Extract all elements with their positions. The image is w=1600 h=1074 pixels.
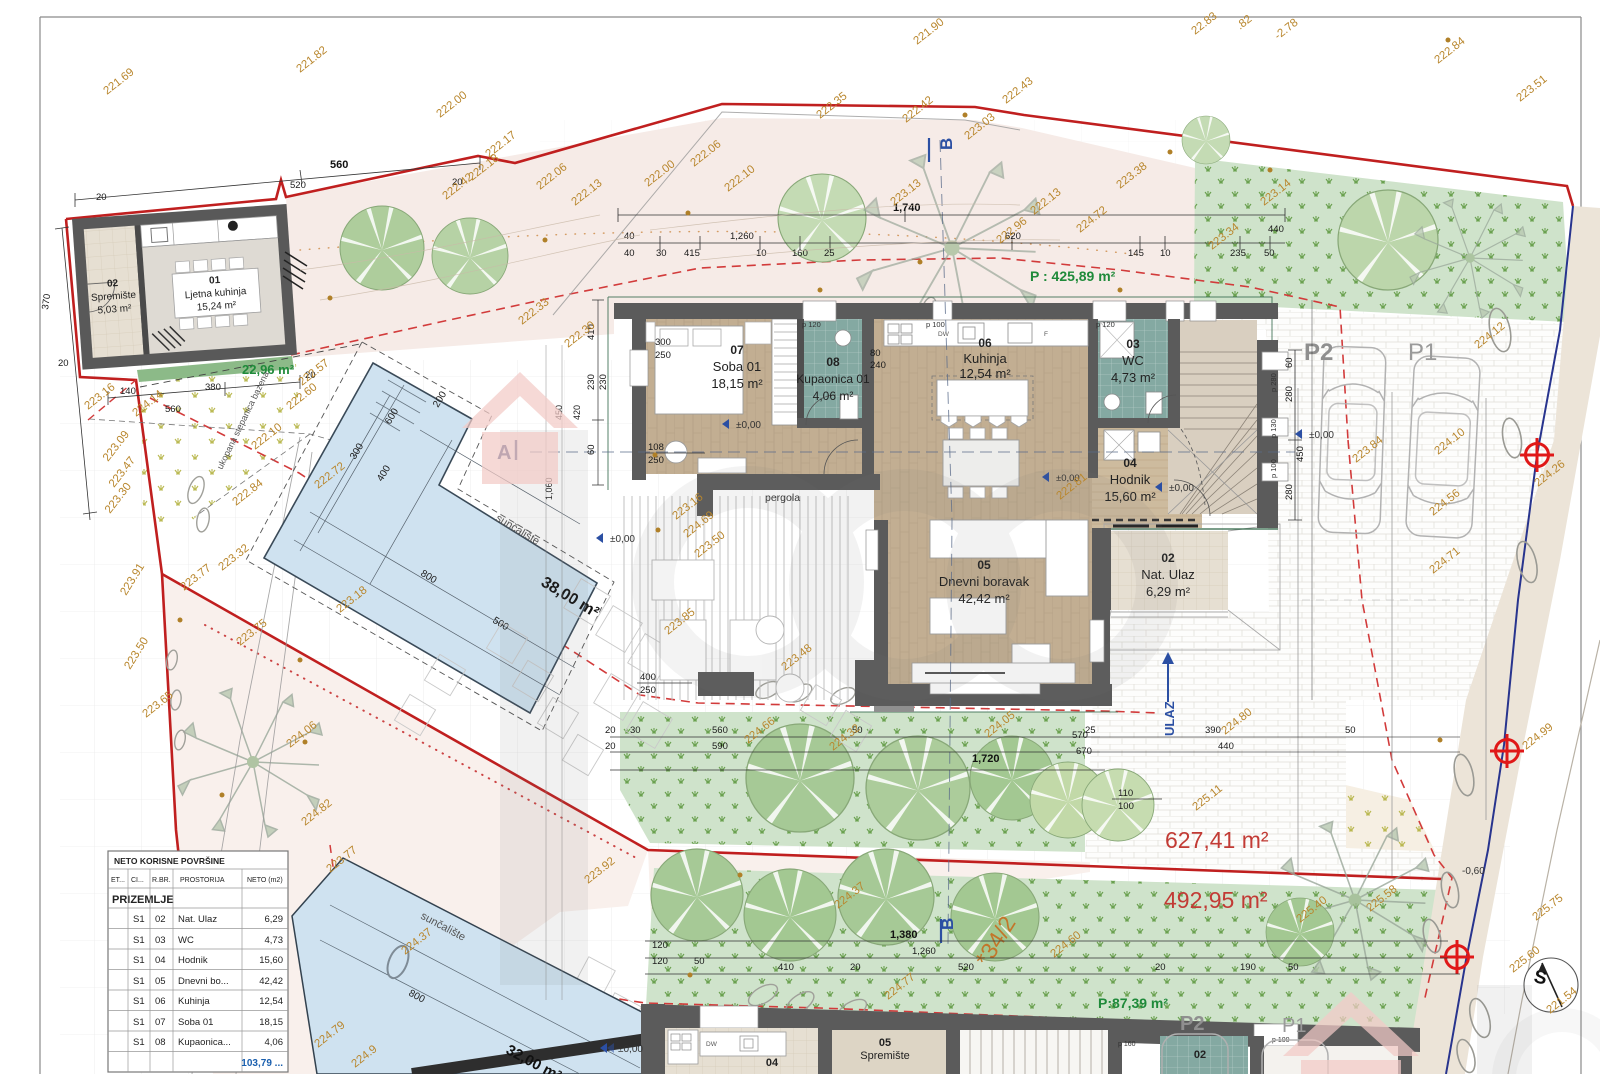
svg-text:20: 20 (605, 741, 616, 752)
svg-text:80: 80 (870, 348, 881, 359)
svg-text:20: 20 (605, 725, 616, 736)
svg-text:12,54 m²: 12,54 m² (959, 366, 1011, 381)
svg-text:30: 30 (656, 248, 667, 259)
svg-text:10: 10 (756, 248, 767, 259)
svg-text:280: 280 (1284, 386, 1295, 402)
svg-text:WC: WC (1122, 353, 1144, 368)
svg-text:42,42: 42,42 (259, 976, 283, 987)
svg-text:50: 50 (1264, 248, 1275, 259)
svg-text:50: 50 (694, 956, 705, 967)
svg-text:Spremište: Spremište (860, 1050, 910, 1062)
svg-text:06: 06 (155, 996, 166, 1007)
svg-text:04: 04 (155, 955, 166, 966)
svg-text:03: 03 (1126, 337, 1140, 351)
svg-text:P:87,39 m²: P:87,39 m² (1098, 995, 1168, 1011)
svg-text:±0,00: ±0,00 (1309, 430, 1334, 441)
svg-text:Soba 01: Soba 01 (713, 359, 761, 374)
svg-text:CI...: CI... (131, 877, 144, 884)
svg-text:S1: S1 (133, 1037, 145, 1048)
svg-text:15,60: 15,60 (259, 955, 283, 966)
svg-text:DW: DW (938, 331, 950, 338)
svg-text:280: 280 (1284, 484, 1295, 500)
svg-text:WC: WC (178, 935, 194, 946)
svg-text:420: 420 (572, 405, 582, 420)
svg-text:NETO (m2): NETO (m2) (247, 877, 283, 884)
svg-text:190: 190 (1240, 962, 1256, 973)
svg-text:p 280: p 280 (1269, 373, 1278, 392)
svg-text:50: 50 (1288, 962, 1299, 973)
svg-text:07: 07 (730, 343, 744, 357)
svg-text:±0,00: ±0,00 (618, 1044, 643, 1055)
svg-text:PRIZEMLJE: PRIZEMLJE (112, 894, 174, 906)
svg-text:S1: S1 (133, 1017, 145, 1028)
svg-text:P2: P2 (1180, 1013, 1204, 1035)
svg-text:415: 415 (684, 248, 700, 259)
svg-text:4,73: 4,73 (265, 935, 284, 946)
svg-text:25: 25 (824, 248, 835, 259)
svg-text:4,73 m²: 4,73 m² (1111, 370, 1156, 385)
svg-text:02: 02 (107, 278, 119, 290)
svg-text:04: 04 (1123, 456, 1137, 470)
svg-text:120: 120 (652, 940, 668, 951)
svg-text:1,380: 1,380 (890, 929, 918, 941)
svg-text:108: 108 (648, 442, 664, 453)
svg-text:230: 230 (598, 374, 609, 390)
svg-text:440: 440 (1268, 224, 1284, 235)
svg-text:Kupaonica...: Kupaonica... (178, 1037, 231, 1048)
svg-text:ET...: ET... (111, 877, 125, 884)
svg-text:1,720: 1,720 (972, 753, 1000, 765)
svg-text:05: 05 (155, 976, 166, 987)
svg-text:NETO KORISNE POVRŠINE: NETO KORISNE POVRŠINE (114, 855, 225, 866)
svg-text:Dnevni bo...: Dnevni bo... (178, 976, 229, 987)
svg-text:08: 08 (155, 1037, 166, 1048)
svg-text:p 100: p 100 (1269, 459, 1278, 478)
svg-text:560: 560 (712, 725, 728, 736)
svg-text:440: 440 (1218, 741, 1234, 752)
svg-text:20: 20 (1155, 962, 1166, 973)
svg-text:6,29: 6,29 (265, 914, 284, 925)
svg-text:B: B (937, 138, 956, 150)
svg-text:160: 160 (792, 248, 808, 259)
svg-text:P1: P1 (1282, 1015, 1306, 1037)
svg-text:06: 06 (978, 336, 992, 350)
svg-text:250: 250 (640, 685, 656, 696)
svg-text:110: 110 (1118, 788, 1133, 799)
svg-text:S1: S1 (133, 996, 145, 1007)
svg-text:P2: P2 (1304, 339, 1333, 366)
svg-text:Kuhinja: Kuhinja (963, 351, 1007, 366)
svg-text:Kupaonica 01: Kupaonica 01 (796, 372, 870, 386)
svg-text:07: 07 (155, 1017, 166, 1028)
svg-text:20: 20 (58, 358, 69, 369)
svg-text:60: 60 (1284, 357, 1295, 368)
svg-text:250: 250 (655, 350, 671, 361)
svg-text:04: 04 (766, 1057, 779, 1069)
svg-text:P1: P1 (1408, 339, 1437, 366)
svg-text:10: 10 (1160, 248, 1171, 259)
svg-text:PROSTORIJA: PROSTORIJA (180, 877, 225, 884)
svg-text:670: 670 (1076, 746, 1092, 757)
svg-text:Soba 01: Soba 01 (178, 1017, 213, 1028)
svg-text:520: 520 (958, 962, 974, 973)
svg-text:08: 08 (826, 355, 840, 369)
svg-text:-0,60: -0,60 (1462, 866, 1485, 877)
svg-text:03: 03 (155, 935, 166, 946)
svg-text:145: 145 (1128, 248, 1144, 259)
svg-text:Kuhinja: Kuhinja (178, 996, 210, 1007)
svg-text:4,06: 4,06 (265, 1037, 284, 1048)
svg-text:400: 400 (640, 672, 656, 683)
svg-text:ULAZ: ULAZ (1162, 701, 1177, 736)
svg-text:50: 50 (1345, 725, 1356, 736)
svg-text:300: 300 (655, 337, 671, 348)
svg-text:01: 01 (209, 275, 221, 287)
svg-text:Nat. Ulaz: Nat. Ulaz (178, 914, 217, 925)
svg-text:100: 100 (1118, 801, 1134, 812)
svg-text:40: 40 (624, 248, 635, 259)
svg-text:30: 30 (630, 725, 641, 736)
svg-text:4,06 m²: 4,06 m² (813, 389, 854, 403)
svg-text:Hodnik: Hodnik (178, 955, 208, 966)
svg-text:18,15: 18,15 (259, 1017, 283, 1028)
svg-text:230: 230 (586, 374, 597, 390)
svg-text:560: 560 (330, 159, 348, 171)
svg-text:p 120: p 120 (802, 320, 821, 329)
svg-text:±0,00: ±0,00 (610, 534, 635, 545)
svg-text:370: 370 (40, 293, 53, 310)
svg-text:140: 140 (120, 386, 136, 397)
svg-text:05: 05 (879, 1037, 891, 1049)
svg-text:60: 60 (586, 444, 597, 455)
svg-text:±0,00: ±0,00 (736, 420, 761, 431)
svg-text:p 160: p 160 (1118, 1041, 1136, 1048)
svg-text:380: 380 (205, 382, 221, 393)
svg-text:520: 520 (290, 180, 306, 191)
svg-text:S1: S1 (133, 914, 145, 925)
svg-text:S1: S1 (133, 935, 145, 946)
svg-text:±0,00: ±0,00 (1169, 483, 1194, 494)
svg-text:410: 410 (778, 962, 794, 973)
svg-text:235: 235 (1230, 248, 1246, 259)
svg-text:492,95 m²: 492,95 m² (1164, 887, 1268, 913)
svg-text:S1: S1 (133, 955, 145, 966)
svg-text:DW: DW (706, 1041, 718, 1048)
svg-text:103,79 ...: 103,79 ... (241, 1058, 283, 1069)
svg-text:18,15 m²: 18,15 m² (711, 376, 763, 391)
svg-text:02: 02 (155, 914, 166, 925)
svg-text:20: 20 (96, 192, 107, 203)
svg-text:P : 425,89 m²: P : 425,89 m² (1030, 268, 1116, 284)
svg-text:450: 450 (1295, 446, 1306, 462)
svg-text:1,260: 1,260 (730, 231, 754, 242)
svg-text:20: 20 (850, 962, 861, 973)
svg-text:p 100: p 100 (926, 320, 945, 329)
svg-text:1,260: 1,260 (912, 946, 936, 957)
svg-text:12,54: 12,54 (259, 996, 283, 1007)
svg-text:120: 120 (652, 956, 668, 967)
svg-text:390: 390 (1205, 725, 1221, 736)
svg-text:590: 590 (712, 741, 728, 752)
svg-text:R.BR.: R.BR. (152, 877, 171, 884)
svg-text:240: 240 (870, 360, 886, 371)
svg-text:F: F (1044, 331, 1048, 338)
svg-text:p 130: p 130 (1269, 419, 1278, 438)
svg-text:560: 560 (165, 404, 181, 415)
svg-text:25: 25 (1085, 725, 1096, 736)
svg-text:p 120: p 120 (1096, 320, 1115, 329)
svg-text:S1: S1 (133, 976, 145, 987)
svg-text:627,41 m²: 627,41 m² (1165, 827, 1269, 853)
svg-text:02: 02 (1194, 1049, 1206, 1061)
